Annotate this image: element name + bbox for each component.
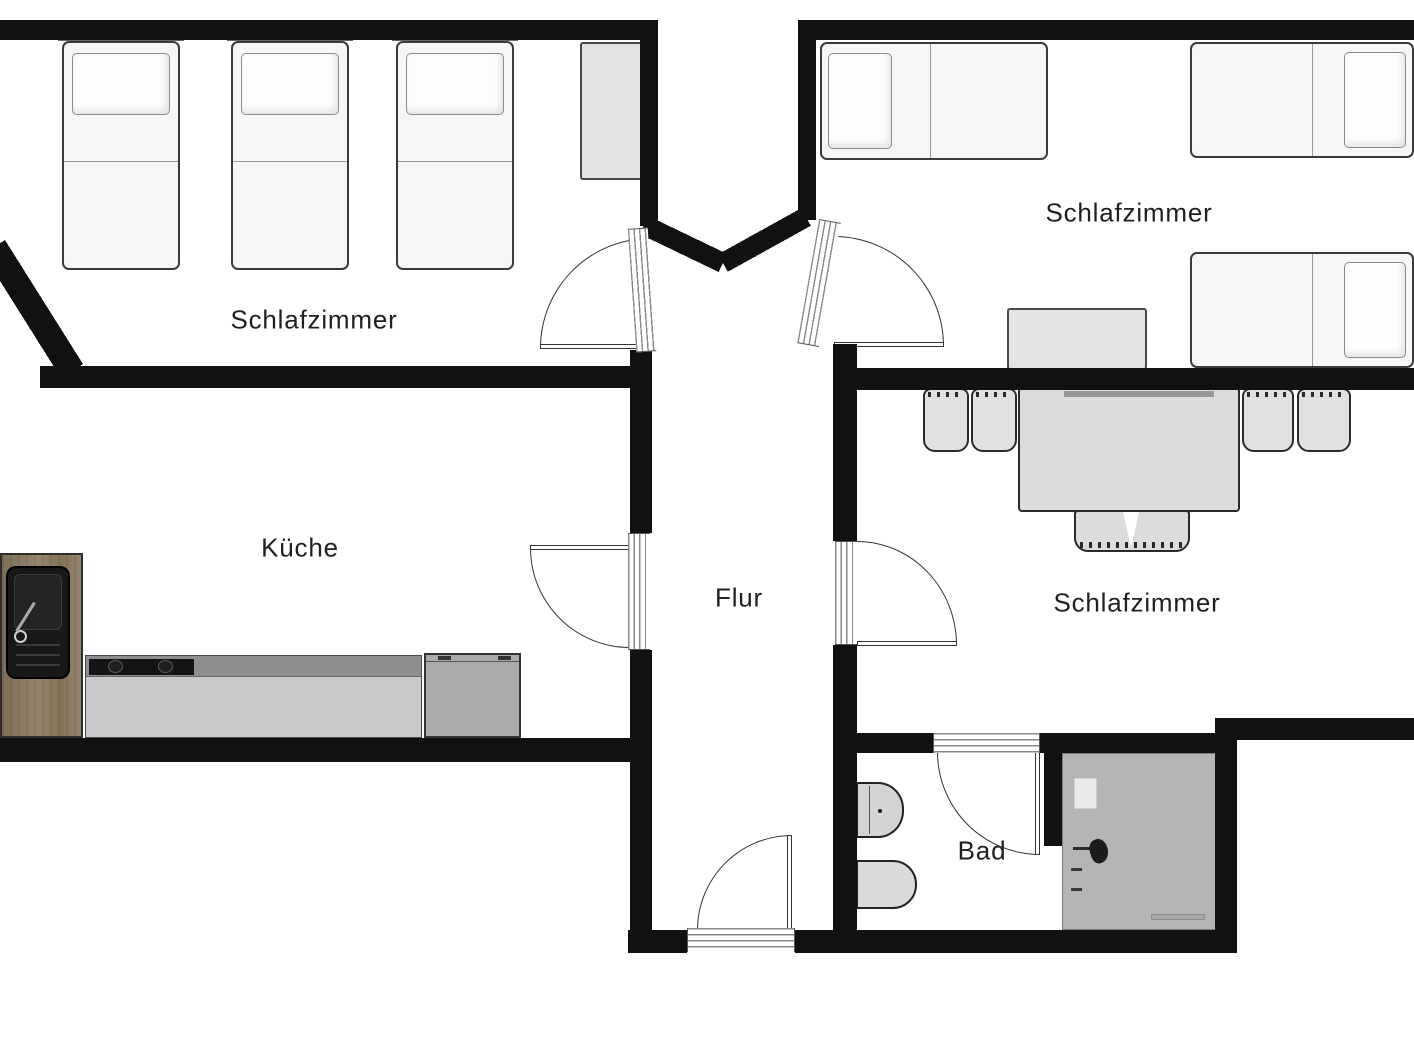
wall-bath-top-right — [1040, 733, 1237, 753]
door-frame-bathroom — [933, 733, 1040, 753]
room-label-bedroom-bottom-right: Schlafzimmer — [1053, 588, 1220, 619]
room-label-bedroom-top-right: Schlafzimmer — [1045, 198, 1212, 229]
wall-hall-right-lower — [833, 645, 857, 930]
wall-bath-stub — [1044, 733, 1062, 846]
door-frame-bedroom-bottom-right — [835, 541, 857, 645]
door-frame-kitchen — [628, 533, 650, 650]
room-label-hallway: Flur — [715, 583, 763, 614]
wall-vestibule-right — [798, 40, 816, 220]
wall-vestibule-left — [640, 40, 658, 226]
wall-bath-right — [1215, 740, 1237, 952]
wall-hall-left-lower — [630, 650, 652, 930]
wall-bedroomtr-bottom — [833, 368, 1414, 390]
wall-bottom-left-seg — [628, 930, 687, 953]
wall-top-right — [798, 20, 1414, 40]
wall-top-left — [0, 20, 658, 40]
wall-kitchen-bottom — [0, 738, 652, 762]
door-frame-entrance — [687, 928, 795, 952]
room-label-bathroom: Bad — [958, 836, 1007, 867]
wall-v-notch-right — [723, 217, 806, 263]
wall-bedroombr-bottom — [1215, 718, 1414, 740]
wall-v-notch-left — [644, 225, 723, 263]
walls-layer — [0, 0, 1414, 1061]
wall-bath-top-left — [833, 733, 933, 753]
wall-bottom-right-seg — [795, 930, 1237, 953]
floor-plan: Schlafzimmer Schlafzimmer Schlafzimmer K… — [0, 0, 1414, 1061]
room-label-bedroom-left: Schlafzimmer — [230, 305, 397, 336]
wall-diagonal-left — [0, 247, 72, 371]
wall-bedroomleft-bottom — [40, 366, 652, 388]
room-label-kitchen: Küche — [261, 533, 339, 564]
